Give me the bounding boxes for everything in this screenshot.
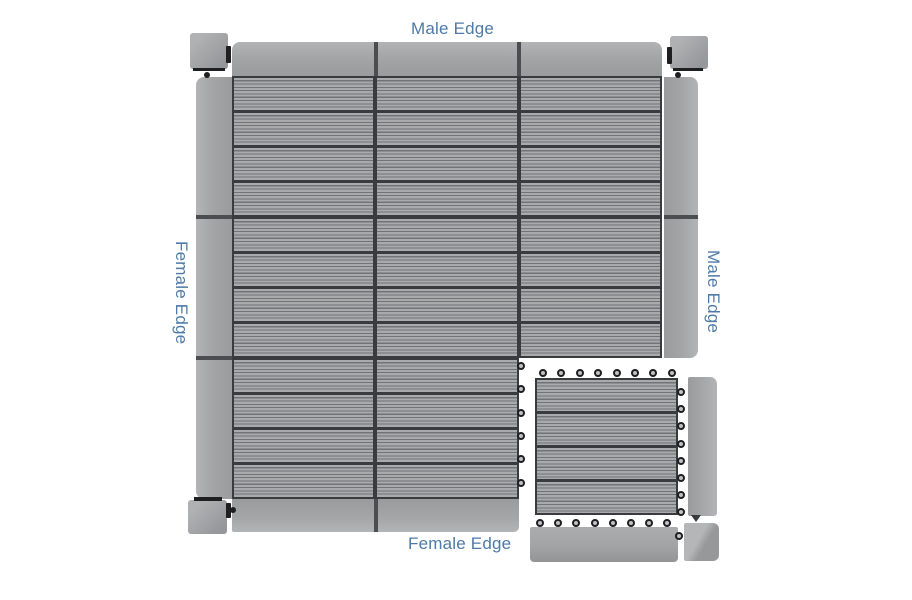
corner-clip — [667, 47, 672, 64]
strip-end-bevel — [691, 515, 701, 522]
deck-plank — [234, 360, 373, 392]
corner-clip-lug — [230, 507, 236, 513]
label-right-male-edge: Male Edge — [703, 250, 723, 333]
tile-right-connector-loop — [677, 388, 685, 396]
label-left-female-edge: Female Edge — [171, 241, 191, 344]
exploded-edge-strip-horizontal — [530, 527, 678, 562]
exploded-corner-piece-bottom-right — [684, 523, 719, 561]
deck-plank — [234, 78, 373, 110]
deck-plank — [234, 289, 373, 321]
tile-right-connector-loop — [677, 422, 685, 430]
deck-plank — [537, 482, 676, 513]
corner-clip — [194, 497, 222, 501]
strip-seam — [517, 42, 521, 76]
label-bottom-female-edge: Female Edge — [408, 534, 511, 554]
deck-plank — [234, 113, 373, 145]
deck-tile — [375, 358, 518, 499]
deck-plank — [377, 430, 516, 462]
grid-edge-connector-loop — [517, 362, 525, 370]
deck-plank — [521, 324, 660, 356]
deck-plank — [377, 254, 516, 286]
deck-plank — [521, 219, 660, 251]
deck-plank — [234, 183, 373, 215]
tile-top-connector-loop — [557, 369, 565, 377]
strip-seam — [196, 356, 232, 360]
grid-edge-connector-loop — [517, 409, 525, 417]
strip-top-connector-loop — [572, 519, 580, 527]
deck-plank — [521, 183, 660, 215]
deck-plank — [537, 414, 676, 445]
deck-plank — [377, 219, 516, 251]
edge-strip-bottom — [232, 499, 519, 532]
exploded-single-deck-tile — [535, 378, 678, 515]
tile-right-connector-loop — [677, 474, 685, 482]
deck-plank — [234, 254, 373, 286]
corner-piece-top-left — [190, 33, 228, 69]
tile-right-connector-loop — [677, 405, 685, 413]
deck-plank — [377, 289, 516, 321]
corner-clip — [193, 68, 225, 71]
deck-plank — [377, 324, 516, 356]
deck-tile — [232, 358, 375, 499]
strip-top-connector-loop — [645, 519, 653, 527]
deck-plank — [521, 113, 660, 145]
tile-top-connector-loop — [613, 369, 621, 377]
tile-top-connector-loop — [594, 369, 602, 377]
deck-tile — [232, 76, 375, 217]
edge-strip-right — [664, 77, 698, 358]
deck-plank — [234, 395, 373, 427]
deck-plank — [234, 465, 373, 497]
strip-top-connector-loop — [536, 519, 544, 527]
deck-tile — [375, 217, 518, 358]
strip-seam — [196, 215, 232, 219]
grid-edge-connector-loop — [517, 385, 525, 393]
edge-strip-left — [196, 77, 232, 499]
corner-clip — [673, 68, 703, 71]
tile-right-connector-loop — [677, 440, 685, 448]
strip-seam — [374, 42, 378, 76]
deck-tile — [519, 76, 662, 217]
tile-top-connector-loop — [576, 369, 584, 377]
corner-clip-lug — [204, 72, 210, 78]
deck-plank — [537, 380, 676, 411]
deck-plank — [234, 148, 373, 180]
deck-tile-installation-diagram: Male Edge Female Edge Male Edge Female E… — [0, 0, 912, 600]
deck-plank — [537, 448, 676, 479]
label-top-male-edge: Male Edge — [411, 19, 494, 39]
deck-plank — [521, 148, 660, 180]
deck-tile — [375, 76, 518, 217]
tile-top-connector-loop — [631, 369, 639, 377]
edge-strip-top — [232, 42, 662, 76]
grid-edge-connector-loop — [517, 479, 525, 487]
tile-right-connector-loop — [677, 491, 685, 499]
strip-right-connector-loop — [675, 532, 683, 540]
deck-plank — [234, 219, 373, 251]
grid-edge-connector-loop — [517, 432, 525, 440]
tile-right-connector-loop — [677, 508, 685, 516]
exploded-edge-strip-vertical — [688, 377, 717, 516]
deck-plank — [377, 113, 516, 145]
corner-clip-lug — [675, 72, 681, 78]
tile-top-connector-loop — [649, 369, 657, 377]
deck-plank — [377, 465, 516, 497]
strip-top-connector-loop — [627, 519, 635, 527]
deck-plank — [377, 148, 516, 180]
deck-tile — [519, 217, 662, 358]
strip-top-connector-loop — [663, 519, 671, 527]
corner-piece-top-right — [670, 36, 708, 69]
tile-top-connector-loop — [539, 369, 547, 377]
deck-plank — [521, 289, 660, 321]
deck-plank — [234, 324, 373, 356]
deck-plank — [521, 254, 660, 286]
tile-top-connector-loop — [668, 369, 676, 377]
corner-clip — [226, 46, 231, 63]
strip-seam — [374, 499, 378, 532]
tile-right-connector-loop — [677, 457, 685, 465]
deck-tile — [232, 217, 375, 358]
strip-top-connector-loop — [609, 519, 617, 527]
deck-plank — [377, 78, 516, 110]
strip-top-connector-loop — [591, 519, 599, 527]
strip-top-connector-loop — [554, 519, 562, 527]
deck-plank — [234, 430, 373, 462]
deck-plank — [377, 183, 516, 215]
deck-plank — [377, 395, 516, 427]
deck-plank — [377, 360, 516, 392]
deck-plank — [521, 78, 660, 110]
grid-edge-connector-loop — [517, 455, 525, 463]
corner-piece-bottom-left — [188, 500, 227, 534]
strip-seam — [664, 215, 698, 219]
